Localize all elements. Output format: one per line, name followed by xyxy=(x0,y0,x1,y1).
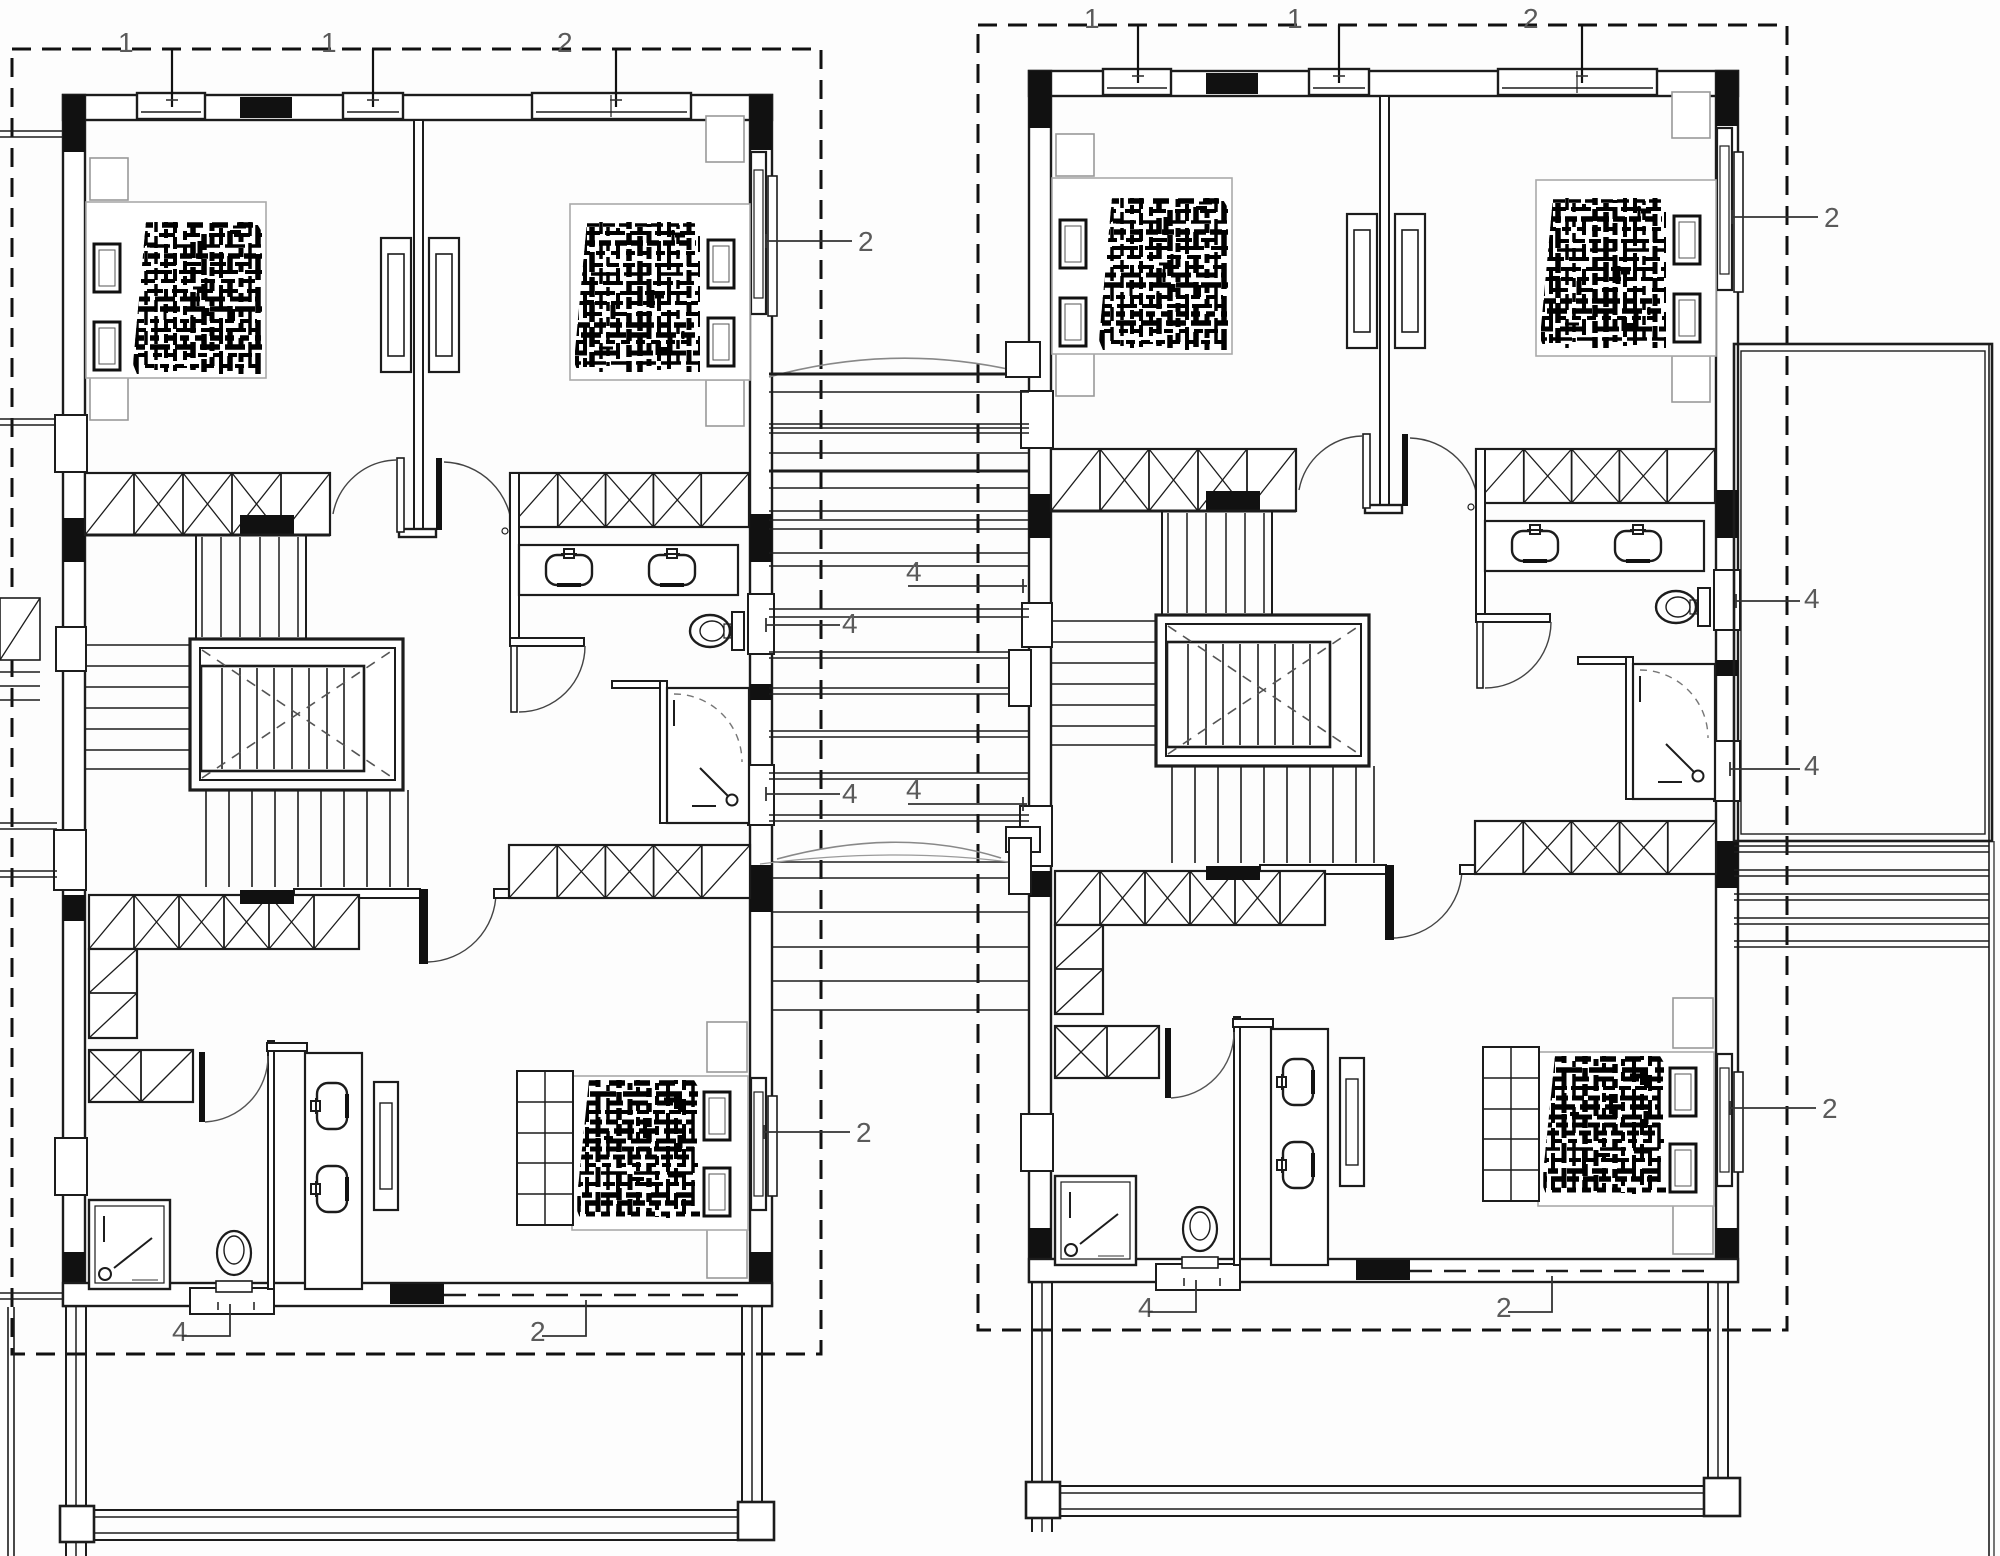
svg-text:4: 4 xyxy=(1804,583,1820,614)
svg-text:1: 1 xyxy=(118,27,134,58)
svg-text:2: 2 xyxy=(530,1316,546,1347)
svg-text:4: 4 xyxy=(1804,750,1820,781)
svg-text:2: 2 xyxy=(858,226,874,257)
svg-text:4: 4 xyxy=(906,774,922,805)
svg-text:1: 1 xyxy=(321,27,337,58)
svg-text:4: 4 xyxy=(842,778,858,809)
svg-text:2: 2 xyxy=(856,1117,872,1148)
svg-text:2: 2 xyxy=(557,27,573,58)
svg-text:4: 4 xyxy=(172,1316,188,1347)
svg-text:4: 4 xyxy=(906,556,922,587)
svg-text:4: 4 xyxy=(842,608,858,639)
